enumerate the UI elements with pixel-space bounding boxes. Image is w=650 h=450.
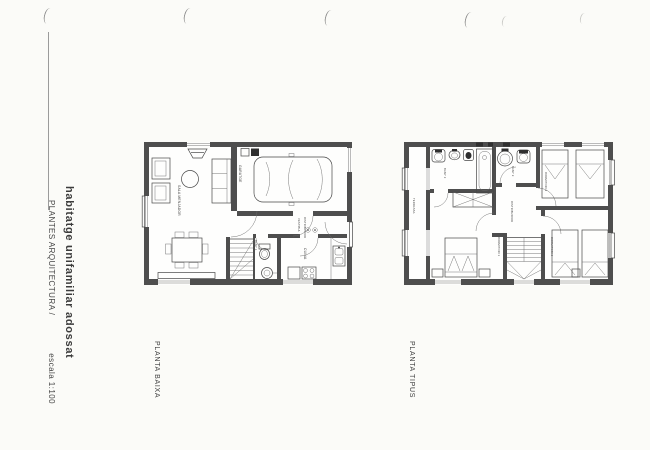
fold-mark <box>42 7 55 25</box>
upper-floor-plan: TERRASSA BANY 2 BANY 3 DISTRIBUIDOR DORM… <box>402 138 615 288</box>
kitchen-label: CUINA <box>303 248 307 260</box>
drawing-sheet: habitatge unifamiliar adossat PLANTES AR… <box>0 0 650 450</box>
project-title: habitatge unifamiliar adossat <box>63 186 75 359</box>
discipline-label: PLANTES ARQUITECTURA / <box>47 200 56 315</box>
window-sill <box>611 233 615 258</box>
bath1-label: BANY 1 <box>254 240 258 251</box>
window-sill <box>402 230 405 256</box>
upper-floor-title: PLANTA TIPUS <box>406 341 416 398</box>
bath3-label: BANY 3 <box>511 166 515 177</box>
title-block-line: PLANTES ARQUITECTURA /escala 1:100 <box>46 200 56 404</box>
fold-mark <box>501 15 510 27</box>
window-sill <box>611 160 615 185</box>
bedroom2-label: DORMITORI 2 <box>550 237 554 257</box>
hall-label: DISTRIBUIDOR <box>510 201 514 222</box>
bath2-label: BANY 2 <box>443 168 447 179</box>
ground-floor-plan: SALA MENJADOR GARATGE VESTIBUL DISTRIBUI… <box>142 138 354 288</box>
bedroom1-label: DORMITORI 1 <box>497 237 501 257</box>
scale-label: escala 1:100 <box>47 353 56 404</box>
fold-mark <box>323 9 336 27</box>
living-room-label: SALA MENJADOR <box>177 185 181 216</box>
fold-mark <box>579 12 588 24</box>
hall-label: DISTRIBUIDOR <box>303 217 307 238</box>
fold-mark <box>463 11 476 29</box>
registration-line <box>48 32 49 210</box>
window-sill <box>142 196 145 227</box>
bedroom3-label: DORMITORI 3 <box>544 172 548 192</box>
ground-floor-title: PLANTA BAIXA <box>151 341 161 398</box>
window-sill <box>402 168 405 190</box>
fold-mark <box>182 7 195 25</box>
terrace-label: TERRASSA <box>412 198 416 214</box>
garage-label: GARATGE <box>238 165 242 183</box>
entrance-sill <box>350 222 353 247</box>
vestibule-label: VESTIBUL <box>297 218 301 233</box>
